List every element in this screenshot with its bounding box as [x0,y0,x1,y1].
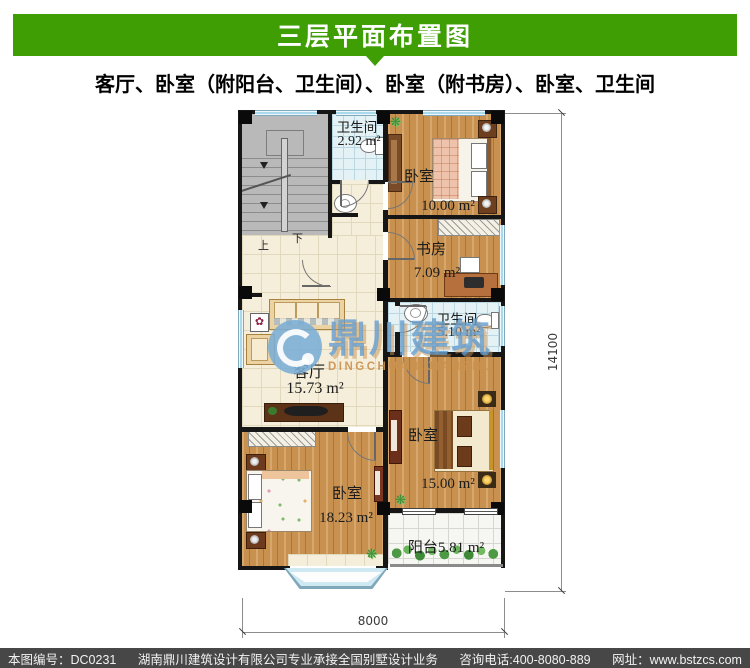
column [239,111,252,124]
dim-height-label: 14100 [546,327,560,377]
wall [388,298,505,302]
tv-plant [268,407,277,415]
pillow-top-2 [471,171,487,197]
wall [383,210,388,232]
lamp-right-1 [482,394,492,404]
plant-icon: ❋ [366,547,377,562]
plant-icon: ❋ [390,115,401,130]
wall [388,215,505,219]
stair-arrow-down [260,202,268,209]
room-area-bath-top: 2.92 m² [326,134,392,150]
room-name-bedroom-right: 卧室 [400,424,446,445]
footer-sheet-number: 本图编号：DC0231 [8,649,116,668]
page-title: 三层平面布置图 [277,17,473,53]
footer-bar: 本图编号：DC0231 湖南鼎川建筑设计有限公司专业承接全国别墅设计业务 咨询电… [0,648,750,668]
room-name-bedroom-bottom: 卧室 [324,482,370,503]
column [377,288,390,301]
pillow-top-1 [471,143,487,169]
column [239,286,252,299]
wall [376,427,388,432]
window [499,306,505,346]
dresser-1-bowl [250,457,259,466]
dim-line-right [561,113,562,592]
column [491,111,504,124]
dim-width-label: 8000 [338,614,408,628]
room-area-bedroom-right: 15.00 m² [408,476,488,493]
bed-bottom-blanket-edge [262,471,309,479]
room-name-bedroom-top: 卧室 [396,165,442,186]
column [491,288,504,301]
footer-website: 网址：www.bstzcs.com [612,649,742,668]
dresser-2-bowl [250,535,259,544]
room-label-balcony: 阳台5.81 m² [396,536,496,557]
window [499,225,505,285]
room-name-bath-top: 卫生间 [326,116,388,136]
window [499,410,505,468]
headboard-right [489,410,493,470]
sofa-seat-shading [274,318,338,325]
bay-window-sill [290,572,382,582]
wall [238,566,290,570]
stair-up-label: 上 [258,237,269,253]
flower-pot: ✿ [250,313,269,332]
tv [284,406,328,416]
room-name-study: 书房 [408,238,454,259]
floor-plan: 上 下 ❋ ✿ ❋ [238,110,505,592]
wall [238,427,348,432]
balcony-door-window [402,508,436,515]
armchair-cushion [251,338,268,361]
bedroom-bottom-wardrobe-hatch [248,431,316,447]
column [239,500,252,513]
toilet-tank-mid [491,312,499,329]
wardrobe-right-panel [391,420,397,451]
balcony-railing [390,564,503,567]
plan-subtitle: 客厅、卧室（附阳台、卫生间）、卧室（附书房）、卧室、卫生间 [0,68,750,97]
room-area-living: 15.73 m² [274,380,356,398]
wall [328,184,332,238]
pillow-bottom-1 [248,474,262,500]
stair-arrow-up [260,162,268,169]
stair-down-label: 下 [292,230,303,246]
sofa-cushion-3 [318,302,340,319]
dim-ext-line [505,113,566,114]
sofa-cushion-1 [274,302,296,319]
pillow-right-2 [457,446,472,467]
lamp-top-1 [482,123,491,132]
dim-line-bottom [242,632,505,633]
pillow-right-1 [457,416,472,437]
stair-handrail [281,138,288,232]
plant-icon: ❋ [395,493,406,508]
room-area-study: 7.09 m² [400,265,474,282]
room-area-bath-mid: 5.10 m² [428,325,490,341]
cabinet-bottom-panel [375,471,380,495]
wall [332,213,358,217]
room-area-bedroom-bottom: 18.23 m² [304,510,388,527]
wall [395,332,400,354]
window [238,310,244,368]
footer-phone: 咨询电话:400-8080-889 [459,649,590,668]
wall [430,352,505,357]
dim-ext-line [505,591,566,592]
window [255,110,317,116]
headboard-top [487,138,491,200]
window [423,110,485,116]
room-area-bedroom-top: 10.00 m² [410,198,486,215]
footer-company: 湖南鼎川建筑设计有限公司专业承接全国别墅设计业务 [138,649,438,668]
header-bar: 三层平面布置图 [13,14,737,56]
wall [388,352,402,357]
balcony-door-window [464,508,498,515]
room-name-living: 客厅 [284,358,334,382]
sofa-cushion-2 [296,302,318,319]
study-wardrobe-hatch [438,219,500,236]
header-pointer-triangle [366,56,384,66]
